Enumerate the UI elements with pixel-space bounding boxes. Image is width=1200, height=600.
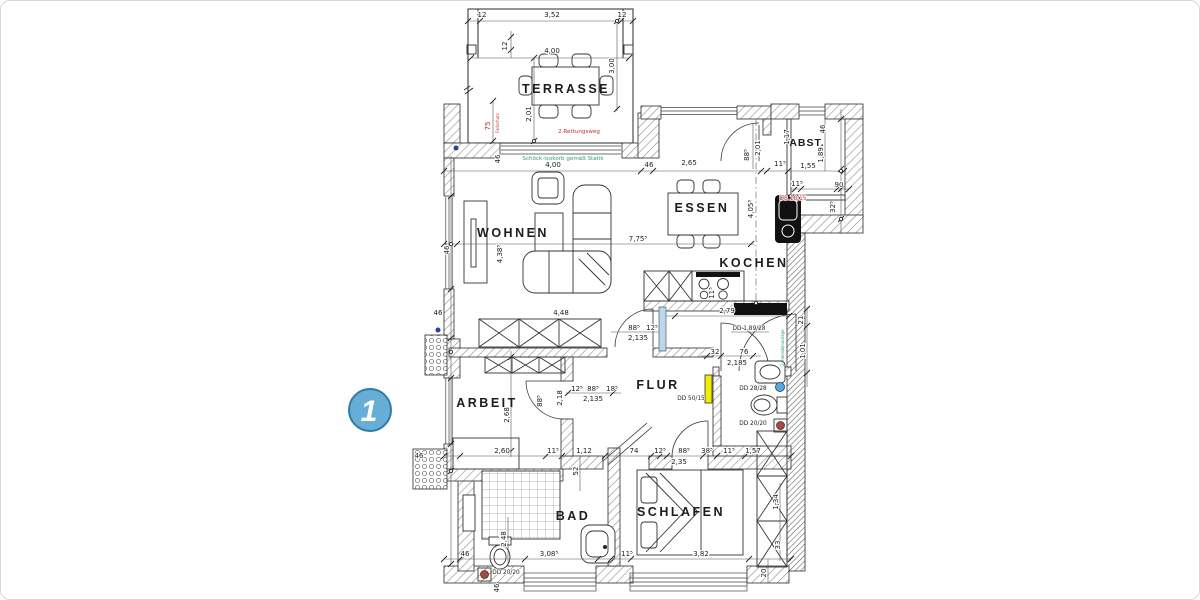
marker-number: 1 — [361, 395, 378, 428]
room-label-flur: FLUR — [636, 378, 679, 392]
symbol-blue-circle — [776, 383, 785, 392]
dim-label: 12⁵ — [654, 447, 666, 455]
dim-label: 2,01 — [754, 140, 762, 156]
dim-label: 1,57 — [745, 447, 761, 455]
dim-label: 2,18 — [556, 390, 564, 406]
symbol-brown-circle — [481, 571, 489, 579]
armchair — [532, 172, 564, 204]
dim-label: 12 — [618, 11, 627, 19]
dim-label: 46 — [645, 161, 654, 169]
opening-label: DD 20/20 — [739, 421, 767, 427]
dim-label: 52 — [572, 467, 580, 476]
dim-label: 11⁵ — [547, 447, 559, 455]
dim-label: 3,52 — [544, 11, 560, 19]
dim-label: 88⁵ — [743, 149, 751, 161]
opening-label: DD 1,89/28 — [732, 326, 765, 332]
dim-label: 46 — [819, 124, 827, 133]
dim-label: 2,135 — [583, 395, 603, 403]
dim-label: 4,05⁵ — [747, 200, 755, 219]
isokorb-note: Schöck-Isokorb gemäß Statik — [522, 156, 604, 162]
dim-label: 1,34 — [772, 494, 780, 510]
dim-label: 88⁵ — [587, 385, 599, 393]
dim-label: 11⁵ — [621, 550, 633, 558]
dim-label: 12 — [501, 42, 509, 51]
shaft-yellow — [705, 375, 712, 403]
dim-label: 2,01 — [525, 106, 533, 122]
dim-label: 3,00 — [608, 58, 616, 74]
dim-label: 11⁵ — [723, 447, 735, 455]
dim-label: 46 — [493, 583, 501, 592]
rescue-route-note: 2.Rettungsweg — [558, 129, 600, 135]
dim-label: 2,35 — [671, 458, 687, 466]
dim-label: 1,12 — [576, 447, 592, 455]
dim-label: 74 — [630, 447, 639, 455]
closet-row-arbeit — [485, 357, 565, 373]
dim-label: 46 — [415, 452, 424, 460]
sink-bad — [581, 525, 615, 563]
dim-label: 46 — [494, 154, 502, 163]
dim-label: 12 — [478, 11, 487, 19]
dim-label: 2,60 — [494, 447, 510, 455]
dim-label: 46 — [443, 245, 451, 254]
symbol-brown-circle — [777, 422, 785, 430]
dim-label: 1,55 — [800, 162, 816, 170]
exterior-wall-right — [787, 233, 805, 571]
dim-label: 2,65 — [681, 159, 697, 167]
dim-label: 4,38⁵ — [496, 245, 504, 264]
opening-label: DD 20/20 — [492, 570, 520, 576]
dim-label: 12⁵ — [571, 385, 583, 393]
dim-label: 46 — [434, 309, 443, 317]
dim-label: 2,185 — [727, 359, 747, 367]
dim-label: 7,75⁵ — [629, 235, 648, 243]
floor-plan-svg: 12 3,52 12 12 4,00 3,00 2,01 75 46 4,00 … — [1, 1, 1200, 600]
dim-label: 46 — [461, 550, 470, 558]
kitchen-sink-unit — [775, 195, 801, 243]
dim-label: 20 — [760, 569, 768, 578]
room-label-abst: ABST. — [789, 137, 824, 149]
dim-label: 21 — [797, 316, 805, 325]
floor-plan-image: 12 3,52 12 12 4,00 3,00 2,01 75 46 4,00 … — [0, 0, 1200, 600]
insulation-pad — [425, 335, 447, 375]
room-label-bad: BAD — [556, 509, 591, 523]
dim-label: 76 — [740, 348, 749, 356]
dim-label: 88⁵ — [678, 447, 690, 455]
room-label-arbeit: ARBEIT — [456, 396, 518, 410]
doors — [526, 123, 796, 465]
dim-label: 32⁵ — [829, 201, 837, 213]
dim-label: 1,89 — [817, 147, 825, 163]
marker-1[interactable]: 1 — [349, 389, 391, 431]
toilet-wc — [751, 395, 787, 415]
dim-label: 88⁵ — [536, 395, 544, 407]
dim-label: 11⁵ — [791, 180, 803, 188]
plumbing-wall — [659, 307, 666, 351]
room-label-essen: ESSEN — [675, 201, 730, 215]
room-label-wohnen: WOHNEN — [477, 226, 549, 240]
opening-label: DD 28/28 — [739, 386, 767, 392]
wardrobe-note: Garderobenanlage — [780, 329, 785, 367]
dim-label: 12⁵ — [646, 324, 658, 332]
opening-label: DB 18/15 — [780, 196, 807, 202]
dim-label: 4,48 — [553, 309, 569, 317]
dim-label: 18⁵ — [606, 385, 618, 393]
shower — [482, 471, 560, 539]
sideboard — [464, 201, 487, 283]
radiator — [463, 495, 475, 531]
dim-label: 75 — [484, 122, 492, 131]
dim-label: 11⁵ — [708, 287, 716, 299]
symbol-blue-dot — [436, 328, 441, 333]
dim-label: 4,00 — [545, 161, 561, 169]
room-label-kochen: KOCHEN — [719, 256, 788, 270]
dim-label: 3,82 — [693, 550, 709, 558]
lintel-black — [734, 303, 787, 315]
dim-label: 2,79 — [719, 307, 735, 315]
dim-label: 1,01 — [799, 343, 807, 359]
opening-label: DD 50/15 — [677, 396, 705, 402]
dim-label: 11⁵ — [774, 160, 786, 168]
dim-label: 33 — [774, 541, 782, 550]
dim-label: 38⁵ — [701, 447, 713, 455]
dim-label: 2,135 — [628, 334, 648, 342]
closet-row-wohnen — [479, 319, 601, 347]
kitchen-counter — [644, 271, 744, 301]
room-label-terrasse: TERRASSE — [522, 82, 610, 96]
symbol-blue-dot — [454, 146, 459, 151]
dim-label: 90 — [835, 181, 844, 189]
dim-label: 4,00 — [544, 47, 560, 55]
dim-label: 3,08⁵ — [540, 550, 559, 558]
room-label-schlafen: SCHLAFEN — [637, 505, 725, 519]
dim-label: 32 — [711, 348, 720, 356]
dim-label: 88⁵ — [628, 324, 640, 332]
fall-protection-note: Fallschutz — [495, 113, 500, 133]
dim-label: 2,48 — [500, 531, 508, 547]
